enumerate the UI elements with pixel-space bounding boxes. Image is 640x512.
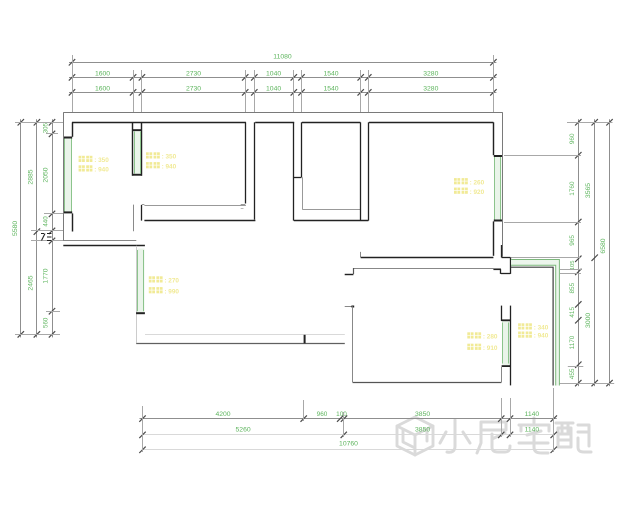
svg-text:: 350: : 350: [162, 154, 177, 161]
svg-text:440: 440: [43, 216, 50, 227]
svg-text:3280: 3280: [423, 70, 438, 77]
svg-text:: 990: : 990: [164, 288, 179, 295]
svg-text:960: 960: [317, 411, 328, 418]
svg-text:: 910: : 910: [483, 345, 498, 352]
svg-text:3850: 3850: [415, 411, 430, 418]
svg-text:3565: 3565: [585, 183, 592, 198]
svg-text:: 350: : 350: [94, 157, 109, 164]
svg-text:560: 560: [43, 317, 50, 328]
svg-text:105: 105: [570, 261, 576, 271]
svg-text:: 940: : 940: [534, 333, 549, 340]
svg-text:1140: 1140: [525, 426, 540, 433]
svg-text:1770: 1770: [43, 268, 50, 283]
svg-text:1140: 1140: [525, 411, 540, 418]
svg-text:455: 455: [569, 368, 576, 379]
svg-text:: 260: : 260: [470, 179, 485, 186]
svg-text:11080: 11080: [273, 54, 292, 61]
svg-text:965: 965: [569, 235, 576, 246]
svg-text:1540: 1540: [323, 85, 338, 92]
svg-text:305: 305: [43, 122, 50, 133]
svg-text:1600: 1600: [95, 85, 110, 92]
svg-text:1040: 1040: [266, 70, 281, 77]
svg-text:2885: 2885: [28, 169, 35, 184]
svg-text:2730: 2730: [186, 70, 201, 77]
svg-text:: 270: : 270: [164, 278, 179, 285]
svg-text:960: 960: [569, 133, 576, 144]
svg-text:3850: 3850: [415, 426, 430, 433]
svg-text:3280: 3280: [423, 85, 438, 92]
svg-text:3000: 3000: [585, 313, 592, 328]
svg-text:: 940: : 940: [162, 163, 177, 170]
svg-text:6580: 6580: [600, 238, 607, 253]
svg-text:10760: 10760: [339, 440, 358, 447]
svg-text:1600: 1600: [95, 70, 110, 77]
svg-text:2730: 2730: [186, 85, 201, 92]
svg-text:415: 415: [569, 307, 576, 318]
svg-text:1760: 1760: [569, 181, 576, 196]
svg-text:1170: 1170: [569, 335, 576, 349]
svg-text:: 340: : 340: [534, 325, 549, 332]
svg-text:5580: 5580: [12, 221, 19, 236]
svg-text:: 920: : 920: [470, 189, 485, 196]
svg-text:100: 100: [336, 411, 347, 418]
svg-text:2465: 2465: [28, 275, 35, 290]
svg-text:1540: 1540: [323, 70, 338, 77]
svg-text:1040: 1040: [266, 85, 281, 92]
svg-text:4200: 4200: [215, 411, 230, 418]
svg-text:2050: 2050: [43, 167, 50, 182]
svg-text:: 940: : 940: [94, 167, 109, 174]
svg-text:: 280: : 280: [483, 334, 498, 341]
svg-text:855: 855: [569, 282, 576, 293]
svg-text:5260: 5260: [236, 426, 251, 433]
